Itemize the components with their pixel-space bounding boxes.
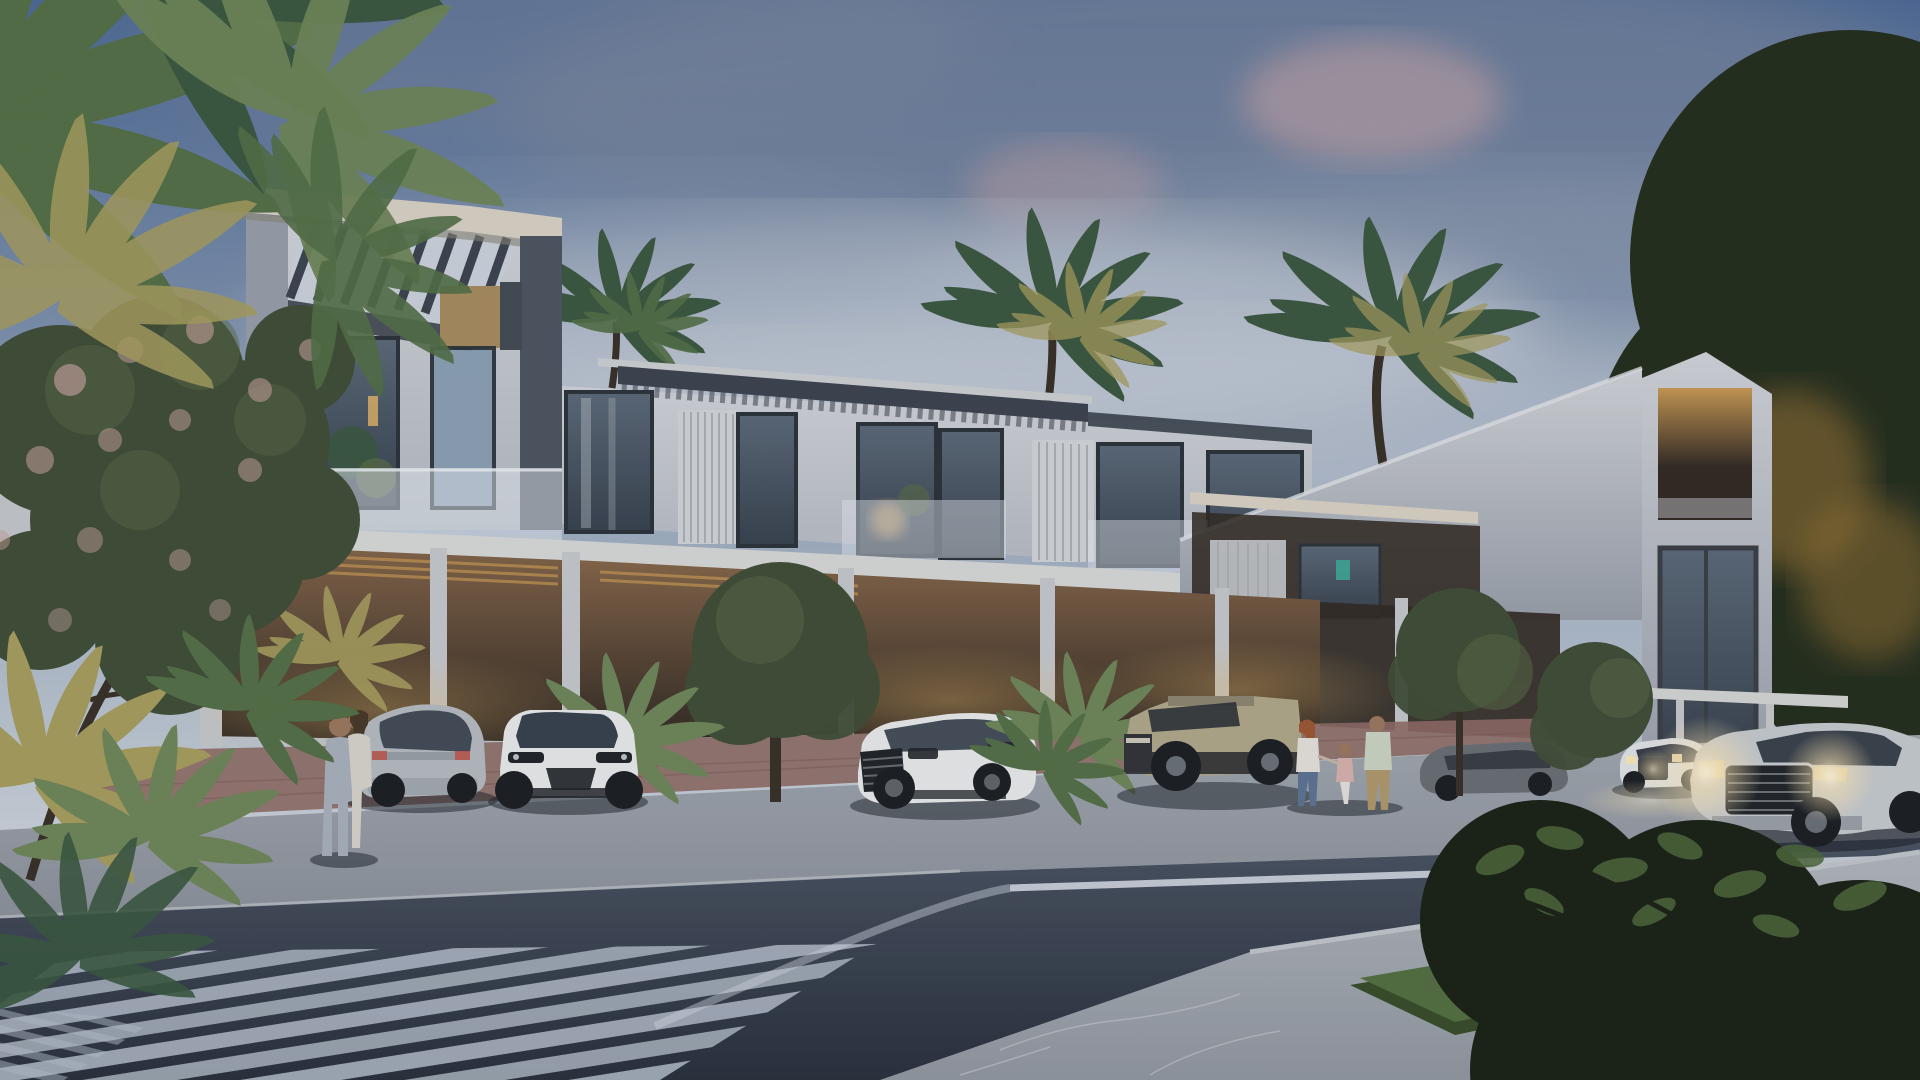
dusk-vignette <box>0 0 1920 1080</box>
dusk-villa-render <box>0 0 1920 1080</box>
render-canvas <box>0 0 1920 1080</box>
